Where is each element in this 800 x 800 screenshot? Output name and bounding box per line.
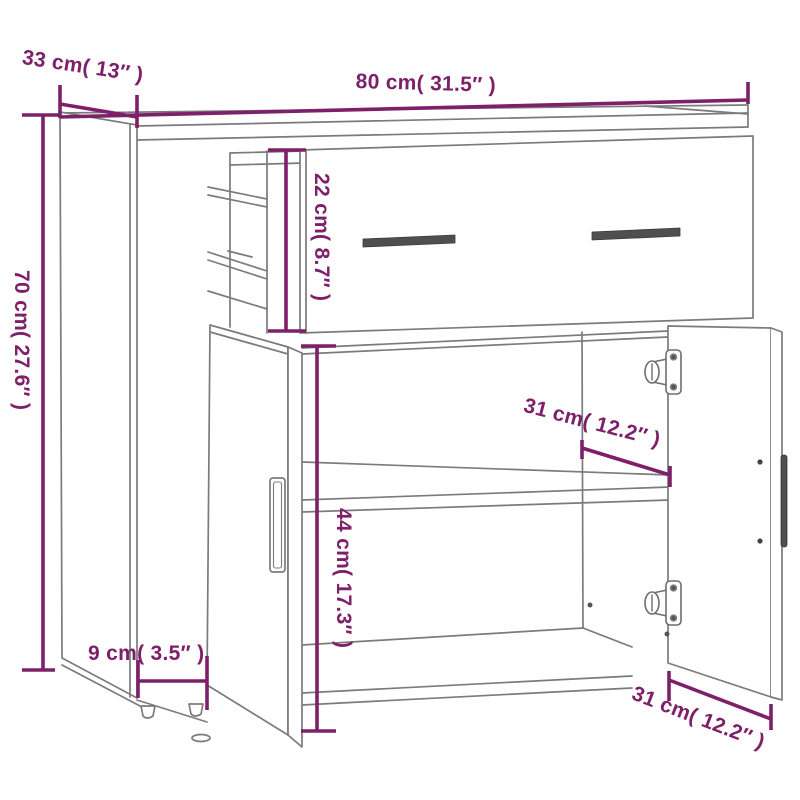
dimension-label-drawer-height: 22 cm( 8.7″ ) bbox=[309, 173, 333, 301]
drawer-opening bbox=[208, 151, 267, 333]
dimension-label-leg-height: 9 cm( 3.5″ ) bbox=[88, 642, 204, 666]
foot bbox=[189, 704, 203, 716]
top-hinge-icon bbox=[645, 350, 681, 394]
foot bbox=[141, 706, 155, 718]
dimension-label-height: 70 cm( 27.6″ ) bbox=[9, 270, 33, 410]
left-door bbox=[207, 325, 302, 747]
foot bbox=[192, 735, 210, 742]
drawer bbox=[300, 136, 753, 333]
cabinet-line-art bbox=[0, 0, 800, 800]
right-door bbox=[645, 326, 787, 700]
right-door-handle bbox=[781, 455, 787, 547]
shelf-front-bottom-edge bbox=[302, 500, 670, 512]
dimension-label-width: 80 cm( 31.5″ ) bbox=[355, 70, 496, 98]
bottom-hinge-icon bbox=[645, 581, 681, 625]
screw-hole bbox=[757, 538, 762, 543]
left-side-panel bbox=[60, 112, 140, 706]
screw-hole bbox=[757, 459, 762, 464]
dimension-label-compartment-height: 44 cm( 17.3″ ) bbox=[331, 508, 355, 648]
shelf-pin-hole bbox=[588, 603, 593, 608]
shelf-front-top-edge bbox=[302, 487, 670, 500]
shelf-back-edge bbox=[302, 462, 670, 475]
product-dimension-image: 80 cm( 31.5″ ) 33 cm( 13″ ) 70 cm( 27.6″… bbox=[0, 0, 800, 800]
cabinet-interior bbox=[302, 331, 670, 647]
screw-hole bbox=[665, 632, 670, 637]
